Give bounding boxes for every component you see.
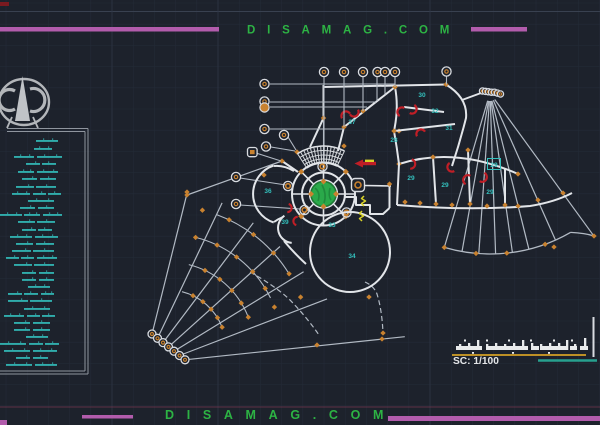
svg-text:31: 31 <box>445 125 453 132</box>
svg-text:29: 29 <box>486 189 494 196</box>
svg-text:32: 32 <box>431 108 439 115</box>
svg-text:37: 37 <box>348 119 356 126</box>
svg-text:SC: 1/100: SC: 1/100 <box>453 356 499 367</box>
svg-text:D I S A M A G . C O M: D I S A M A G . C O M <box>247 25 454 37</box>
svg-text:34: 34 <box>348 253 356 260</box>
svg-text:33: 33 <box>328 222 336 229</box>
svg-text:28: 28 <box>390 137 398 144</box>
svg-text:39: 39 <box>281 219 289 226</box>
svg-text:D I S A M A G . C O M: D I S A M A G . C O M <box>165 408 388 422</box>
svg-text:29: 29 <box>441 182 449 189</box>
svg-text:29: 29 <box>490 162 498 169</box>
svg-text:29: 29 <box>407 175 415 182</box>
svg-text:30: 30 <box>418 92 426 99</box>
svg-text:36: 36 <box>264 188 272 195</box>
